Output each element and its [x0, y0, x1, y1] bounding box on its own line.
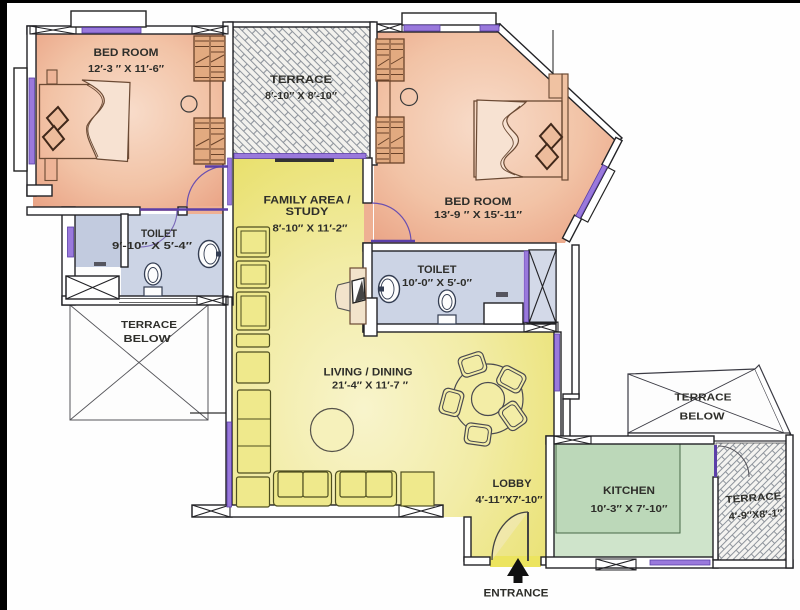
svg-text:TOILET: TOILET [141, 228, 177, 240]
svg-text:BELOW: BELOW [680, 412, 726, 423]
svg-text:10′-3″ X 7′-10″: 10′-3″ X 7′-10″ [591, 504, 668, 515]
svg-text:9′-10″ X 5′-4″: 9′-10″ X 5′-4″ [112, 241, 192, 252]
svg-text:TOILET: TOILET [418, 264, 457, 276]
svg-text:BED ROOM: BED ROOM [445, 196, 512, 208]
svg-text:TERRACE: TERRACE [270, 74, 332, 86]
svg-text:ENTRANCE: ENTRANCE [484, 588, 549, 600]
svg-text:21′-4″ X 11′-7 ″: 21′-4″ X 11′-7 ″ [332, 381, 408, 392]
svg-text:TERRACE: TERRACE [675, 393, 732, 404]
svg-text:TERRACE: TERRACE [121, 320, 177, 331]
svg-text:8′-10″ X 11′-2″: 8′-10″ X 11′-2″ [273, 224, 348, 235]
svg-text:12′-3 ″ X 11′-6″: 12′-3 ″ X 11′-6″ [88, 64, 164, 75]
svg-text:LOBBY: LOBBY [493, 478, 533, 490]
svg-text:13′-9 ″ X 15′-11″: 13′-9 ″ X 15′-11″ [434, 210, 522, 221]
svg-text:4′-11″X7′-10″: 4′-11″X7′-10″ [476, 495, 543, 506]
svg-text:BED ROOM: BED ROOM [94, 47, 159, 59]
svg-text:STUDY: STUDY [286, 206, 330, 218]
svg-text:10′-0″ X 5′-0″: 10′-0″ X 5′-0″ [402, 278, 472, 289]
svg-text:FAMILY AREA /: FAMILY AREA / [264, 195, 351, 207]
svg-text:BELOW: BELOW [124, 334, 172, 345]
svg-text:KITCHEN: KITCHEN [603, 485, 655, 497]
svg-text:8′-10″ X 8′-10″: 8′-10″ X 8′-10″ [265, 91, 337, 102]
svg-text:LIVING / DINING: LIVING / DINING [324, 367, 413, 379]
